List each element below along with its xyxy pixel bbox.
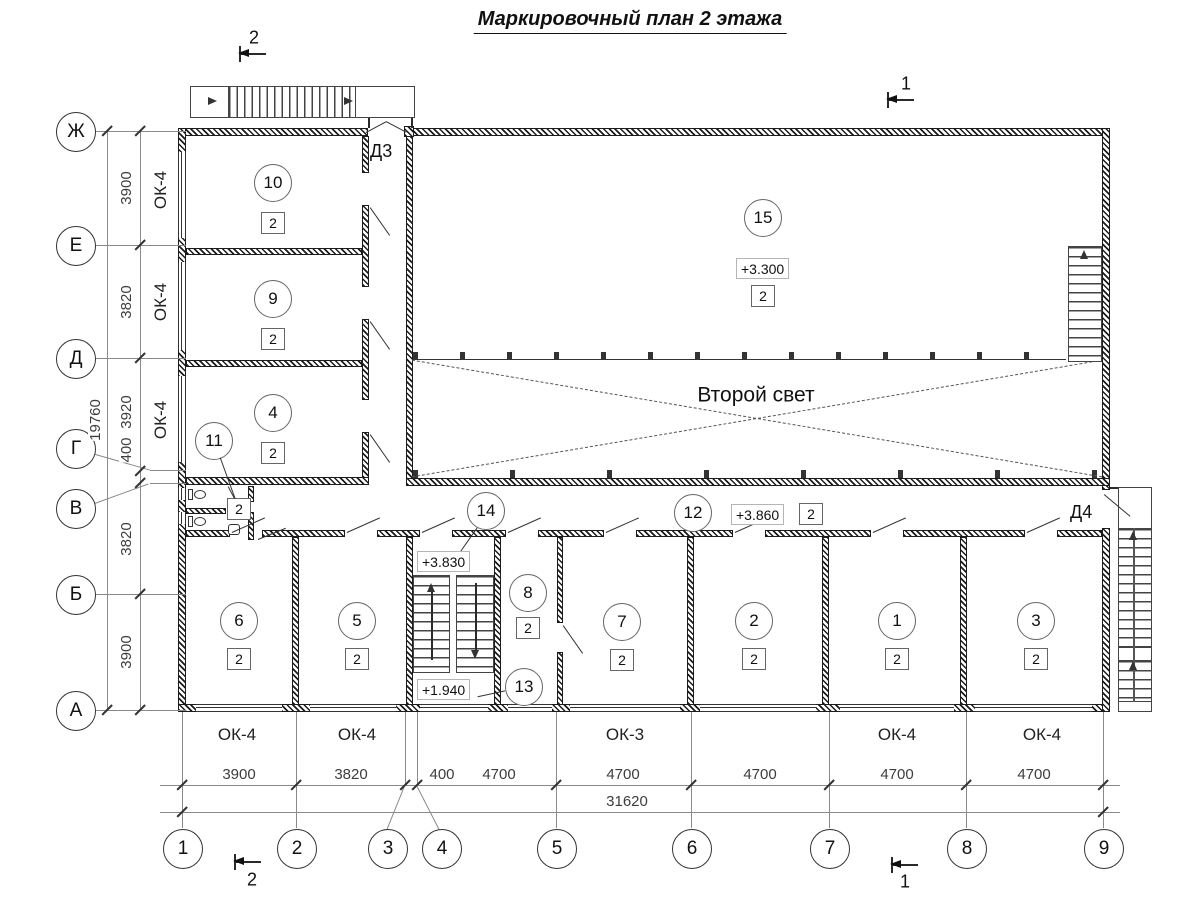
arrow-up-icon [1080, 250, 1088, 259]
dim-total-label: 19760 [88, 399, 104, 441]
wall-hall-west [406, 136, 413, 486]
stair-arrow-line [431, 590, 433, 660]
window [420, 704, 488, 712]
wall-partition [960, 537, 967, 705]
stair-connector [1110, 487, 1118, 489]
room-circle-1: 1 [878, 602, 916, 640]
axis-circle-6: 6 [672, 829, 712, 869]
arrow-up-icon [1129, 531, 1137, 540]
wall-partition [557, 537, 563, 623]
axis-extension [150, 483, 186, 484]
window-label: ОК-4 [218, 726, 256, 744]
balustrade [413, 352, 1066, 360]
wall-right-lower [1102, 528, 1110, 712]
door-swing [1027, 517, 1060, 533]
axis-extension [150, 470, 186, 471]
elevation-stair-upper: +3.830 [417, 551, 470, 572]
room-circle-2: 2 [735, 602, 773, 640]
axis-extension [417, 712, 418, 785]
unit-square-6: 2 [227, 648, 251, 670]
dimension-line [107, 131, 108, 710]
dim-label: 400 [429, 767, 454, 783]
door-swing [606, 517, 639, 533]
dim-label: 3920 [119, 395, 135, 428]
stair-divider [449, 575, 457, 673]
dim-label: 4700 [880, 767, 913, 783]
window [196, 704, 282, 712]
window-label: ОК-4 [338, 726, 376, 744]
axis-extension [966, 712, 967, 828]
unit-square-10: 2 [261, 212, 285, 234]
wall-partition [292, 537, 299, 705]
window [975, 704, 1092, 712]
unit-square-1: 2 [885, 648, 909, 670]
axis-circle-1: 1 [163, 829, 203, 869]
wall-corridor-west [362, 319, 369, 400]
dim-label: 3820 [334, 767, 367, 783]
door-swing [369, 207, 390, 236]
arrow-up-icon [427, 583, 435, 592]
window-label: ОК-3 [606, 726, 644, 744]
dim-label: 4700 [743, 767, 776, 783]
unit-square-5: 2 [345, 648, 369, 670]
axis-circle-e: Е [56, 226, 96, 266]
wall-corridor-south [377, 530, 420, 537]
window [178, 512, 186, 524]
door-swing [562, 625, 583, 654]
stair-treads [228, 87, 356, 117]
arrow-right-icon [208, 97, 217, 105]
window [178, 152, 186, 238]
axis-circle-d: Д [56, 339, 96, 379]
room-circle-4: 4 [254, 394, 292, 432]
window-label: ОК-4 [152, 283, 170, 321]
unit-square-9: 2 [261, 328, 285, 350]
room-circle-10: 10 [254, 164, 292, 202]
room-circle-12: 12 [674, 494, 712, 532]
section-arrow-icon [233, 857, 244, 865]
stair-connector [411, 118, 413, 128]
room-circle-14: 14 [467, 492, 505, 530]
window-label: ОК-4 [1023, 726, 1061, 744]
window [178, 262, 186, 350]
wall-partition [687, 537, 694, 705]
door-swing [508, 517, 541, 533]
section-arrow-icon [890, 860, 901, 868]
section-arrow-icon [886, 95, 897, 103]
toilet-icon [194, 517, 206, 526]
axis-circle-7: 7 [810, 829, 850, 869]
window [178, 488, 186, 500]
dim-label: 3900 [119, 171, 135, 204]
wall-corridor-west [362, 136, 369, 173]
room-circle-5: 5 [338, 602, 376, 640]
elevation-corridor: +3.860 [731, 504, 784, 525]
room-circle-15: 15 [744, 199, 782, 237]
wall-partition [406, 537, 413, 705]
floor-plan-sheet: Маркировочный план 2 этажа [0, 0, 1200, 900]
dim-label: 3820 [119, 522, 135, 555]
axis-extension [556, 712, 557, 828]
window [310, 704, 396, 712]
balustrade [413, 470, 1102, 478]
arrow-down-icon [471, 650, 479, 659]
unit-square-15: 2 [751, 285, 775, 307]
door-label-d4: Д4 [1070, 503, 1092, 522]
dim-label: 4700 [482, 767, 515, 783]
section-label: 2 [247, 871, 257, 890]
bent-leader [385, 786, 404, 831]
wall-corridor-west [362, 205, 369, 287]
wall-corridor-south [765, 530, 871, 537]
toilet-icon [188, 489, 193, 500]
window [508, 704, 552, 712]
window-label: ОК-4 [152, 401, 170, 439]
section-label: 1 [900, 873, 910, 892]
dim-label: 4700 [606, 767, 639, 783]
room-circle-3: 3 [1017, 602, 1055, 640]
room-circle-11: 11 [195, 422, 233, 460]
room-circle-9: 9 [254, 280, 292, 318]
arrow-up-icon [1129, 661, 1137, 670]
door-label-d3: Д3 [370, 142, 392, 161]
window [840, 704, 954, 712]
dim-total-label: 31620 [606, 794, 648, 810]
wall-partition [494, 537, 501, 705]
wall-hall-south [406, 478, 1110, 486]
door-swing [347, 517, 380, 533]
wall-partition [186, 248, 362, 255]
unit-square-11: 2 [227, 498, 251, 520]
axis-circle-2: 2 [277, 829, 317, 869]
wall-right-upper [1102, 128, 1110, 490]
dimension-line [160, 785, 1120, 786]
window [700, 704, 816, 712]
wall-partition [822, 537, 829, 705]
window-label: ОК-4 [152, 171, 170, 209]
unit-square-3: 2 [1024, 648, 1048, 670]
room-circle-6: 6 [220, 602, 258, 640]
toilet-icon [188, 516, 193, 527]
dimension-line [140, 131, 141, 710]
axis-extension [405, 712, 406, 785]
section-label: 1 [901, 75, 911, 94]
second-light-label: Второй свет [697, 386, 814, 405]
axis-extension [691, 712, 692, 828]
axis-circle-5: 5 [537, 829, 577, 869]
axis-extension [829, 712, 830, 828]
axis-circle-a: А [56, 691, 96, 731]
wall-corridor-south [452, 530, 506, 537]
room-circle-7: 7 [603, 603, 641, 641]
room-circle-13: 13 [505, 668, 543, 706]
unit-square-8: 2 [516, 617, 540, 639]
door-swing [873, 517, 906, 533]
axis-circle-9: 9 [1084, 829, 1124, 869]
unit-square-4: 2 [261, 442, 285, 464]
window [570, 704, 680, 712]
door-swing [369, 434, 390, 463]
door-swing [369, 321, 390, 350]
dimension-line [160, 812, 1120, 813]
stair-arrow-line [475, 583, 477, 653]
dim-label: 4700 [1017, 767, 1050, 783]
room-circle-8: 8 [509, 574, 547, 612]
dim-label: 400 [119, 437, 135, 462]
axis-circle-v: В [56, 489, 96, 529]
wall-partition [186, 477, 369, 485]
stair-arrow-line [1133, 528, 1135, 702]
unit-square-12: 2 [799, 503, 823, 525]
axis-extension [296, 712, 297, 828]
unit-square-2: 2 [742, 648, 766, 670]
section-label: 2 [249, 29, 259, 48]
door-swing [422, 517, 455, 533]
wall-corridor-south [186, 530, 230, 537]
page-title: Маркировочный план 2 этажа [474, 8, 787, 34]
wall-partition [557, 652, 563, 705]
wall-partition [186, 360, 362, 367]
wall-wc-partition [186, 508, 226, 514]
axis-circle-zh: Ж [56, 112, 96, 152]
axis-circle-b: Б [56, 575, 96, 615]
dim-label: 3820 [119, 285, 135, 318]
wall-top-right [404, 128, 1110, 136]
axis-circle-4: 4 [422, 829, 462, 869]
window [178, 376, 186, 462]
window-label: ОК-4 [878, 726, 916, 744]
wall-corridor-south [903, 530, 1025, 537]
arrow-right-icon [344, 97, 353, 105]
section-arrow-icon [238, 49, 249, 57]
wall-corridor-south [538, 530, 604, 537]
wall-top-left [178, 128, 368, 136]
unit-square-7: 2 [610, 649, 634, 671]
axis-circle-3: 3 [368, 829, 408, 869]
elevation-hall: +3.300 [736, 258, 789, 279]
bent-leader [416, 786, 440, 831]
dim-label: 3900 [222, 767, 255, 783]
wall-corridor-south [636, 530, 733, 537]
elevation-stair-lower: +1.940 [417, 679, 470, 700]
toilet-icon [194, 490, 206, 499]
stair-treads [1118, 528, 1152, 648]
dim-label: 3900 [119, 635, 135, 668]
stair-connector [368, 118, 370, 128]
wall-corridor-south [1057, 530, 1102, 537]
axis-circle-8: 8 [947, 829, 987, 869]
stair-hall [1068, 246, 1102, 362]
